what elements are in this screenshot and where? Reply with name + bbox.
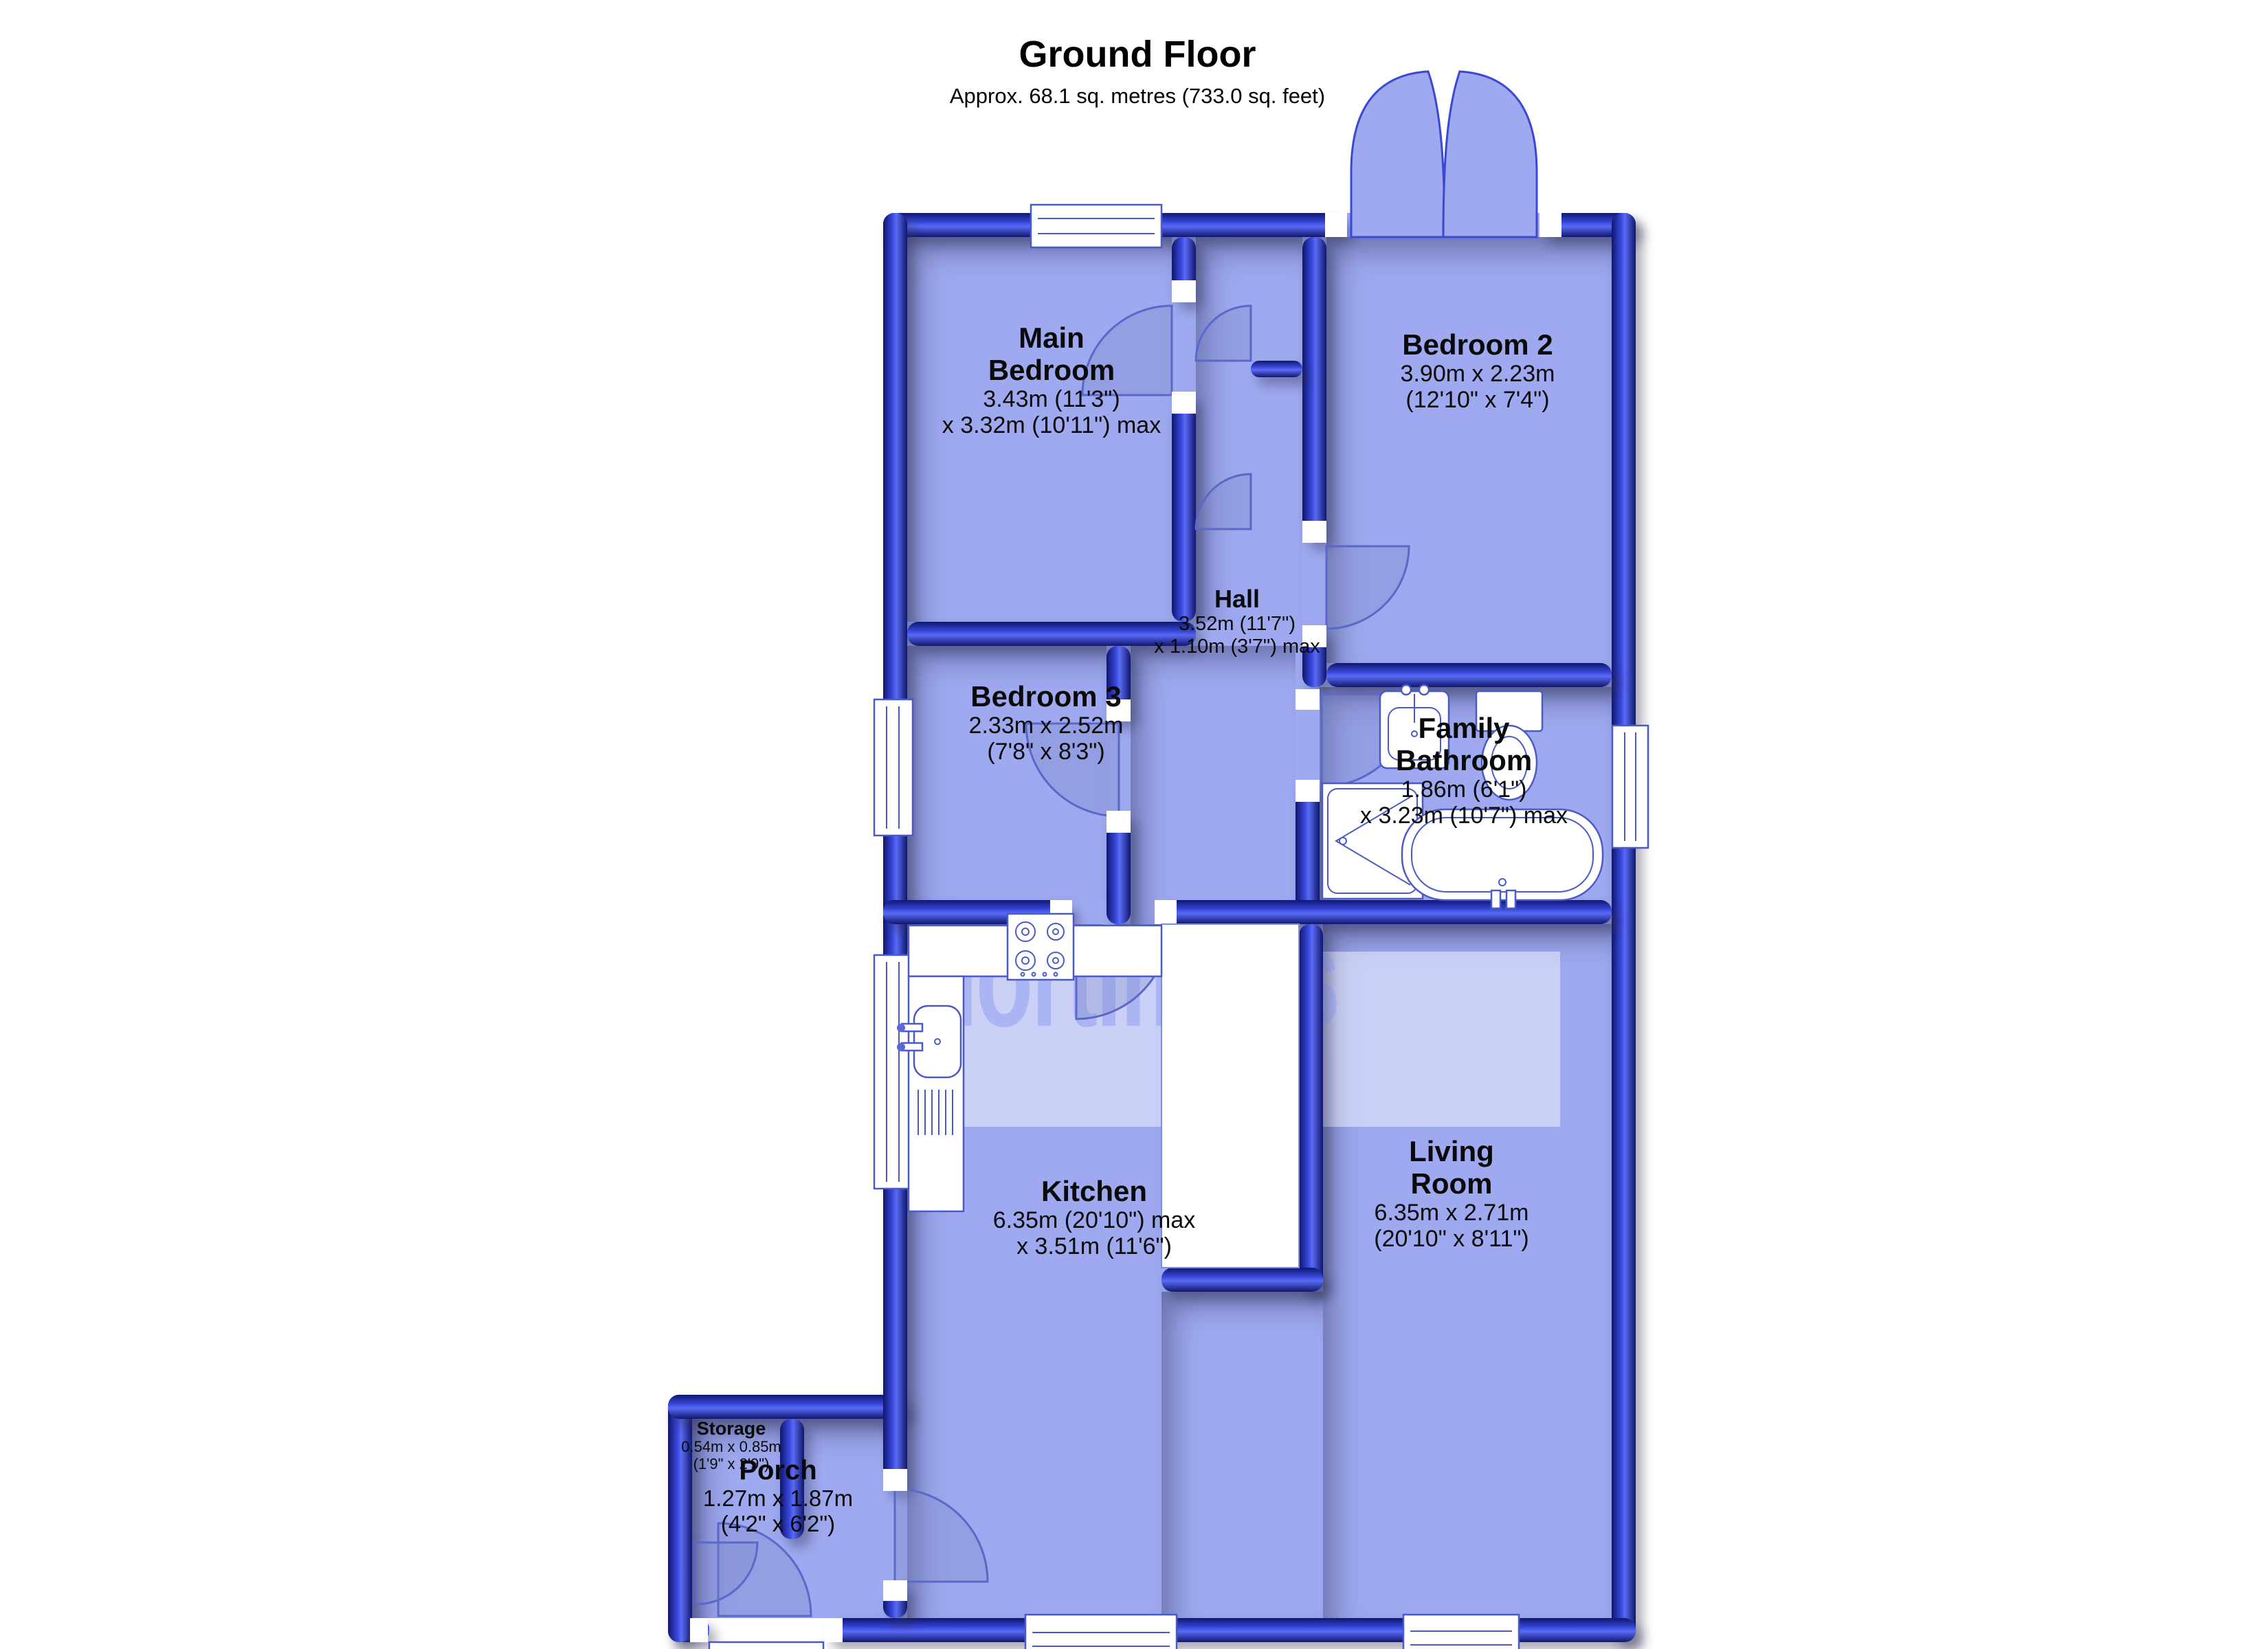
room-name: Storage — [681, 1418, 781, 1439]
room-name: Bedroom 3 — [969, 680, 1124, 713]
room-name: Main — [942, 322, 1161, 354]
room-dimensions: (1'9" x 2'9") — [681, 1456, 781, 1473]
room-dimensions: (20'10" x 8'11") — [1374, 1226, 1529, 1252]
window-bedroom-3 — [874, 699, 913, 835]
label-bedroom-3: Bedroom 3 2.33m x 2.52m (7'8" x 8'3") — [969, 680, 1124, 765]
label-bedroom-2: Bedroom 2 3.90m x 2.23m (12'10" x 7'4") — [1401, 328, 1555, 413]
window-kitchen — [874, 955, 913, 1189]
french-doors — [1351, 71, 1537, 237]
room-dimensions: x 1.10m (3'7") max — [1154, 636, 1320, 658]
front-door-threshold — [709, 1642, 823, 1649]
room-name: Living — [1374, 1135, 1529, 1167]
floorplan-canvas: Ground Floor Approx. 68.1 sq. metres (73… — [0, 0, 2268, 1649]
window-main-bedroom — [1031, 205, 1161, 247]
room-name: Kitchen — [993, 1175, 1195, 1207]
room-dimensions: x 3.32m (10'11") max — [942, 412, 1161, 438]
label-living-room: Living Room 6.35m x 2.71m (20'10" x 8'11… — [1374, 1135, 1529, 1252]
room-dimensions: (12'10" x 7'4") — [1401, 387, 1555, 413]
room-dimensions: x 3.23m (10'7") max — [1360, 803, 1568, 829]
window-living-1 — [1025, 1615, 1177, 1649]
page-subtitle: Approx. 68.1 sq. metres (733.0 sq. feet) — [950, 84, 1325, 109]
room-name: Hall — [1154, 585, 1320, 613]
room-dimensions: 3.43m (11'3") — [942, 386, 1161, 412]
window-living-2 — [1403, 1615, 1519, 1649]
room-dimensions: 1.27m x 1.87m — [703, 1486, 853, 1512]
room-dimensions: 0.54m x 0.85m — [681, 1439, 781, 1456]
room-dimensions: 6.35m (20'10") max — [993, 1207, 1195, 1233]
hob-icon — [1008, 914, 1074, 980]
room-name: Bedroom 2 — [1401, 328, 1555, 361]
room-dimensions: 3.52m (11'7") — [1154, 613, 1320, 635]
label-storage: Storage 0.54m x 0.85m (1'9" x 2'9") — [681, 1418, 781, 1472]
room-dimensions: (4'2" x 6'2") — [703, 1512, 853, 1537]
room-dimensions: (7'8" x 8'3") — [969, 739, 1124, 765]
room-dimensions: 2.33m x 2.52m — [969, 713, 1124, 739]
room-dimensions: 1.86m (6'1") — [1360, 776, 1568, 803]
room-dimensions: x 3.51m (11'6") — [993, 1233, 1195, 1259]
window-bathroom — [1612, 726, 1648, 848]
room-name: Bedroom — [942, 354, 1161, 386]
floorplan-graphics — [0, 0, 2268, 1649]
room-name: Bathroom — [1360, 744, 1568, 776]
label-hall: Hall 3.52m (11'7") x 1.10m (3'7") max — [1154, 585, 1320, 658]
label-main-bedroom: Main Bedroom 3.43m (11'3") x 3.32m (10'1… — [942, 322, 1161, 438]
label-kitchen: Kitchen 6.35m (20'10") max x 3.51m (11'6… — [993, 1175, 1195, 1259]
room-name: Room — [1374, 1167, 1529, 1200]
room-dimensions: 3.90m x 2.23m — [1401, 361, 1555, 387]
label-family-bathroom: Family Bathroom 1.86m (6'1") x 3.23m (10… — [1360, 712, 1568, 829]
page-title: Ground Floor — [1019, 33, 1256, 76]
room-name: Family — [1360, 712, 1568, 744]
room-dimensions: 6.35m x 2.71m — [1374, 1200, 1529, 1226]
